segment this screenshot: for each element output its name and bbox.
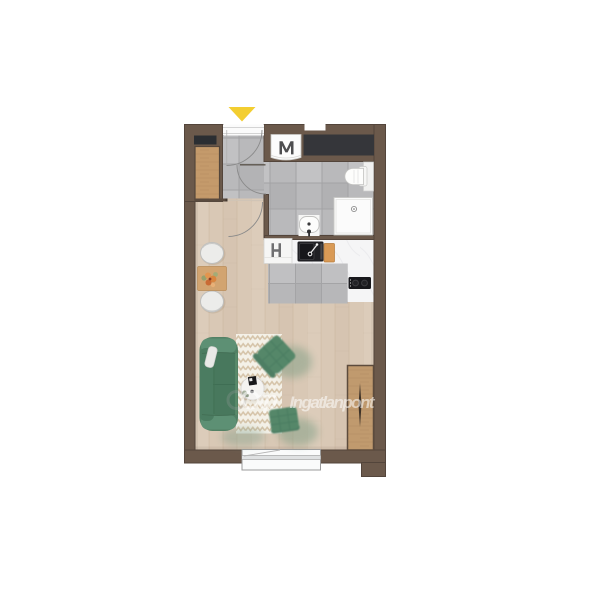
svg-text:tp: tp (258, 387, 278, 414)
svg-text:Ingatlanpont: Ingatlanpont (290, 393, 376, 412)
